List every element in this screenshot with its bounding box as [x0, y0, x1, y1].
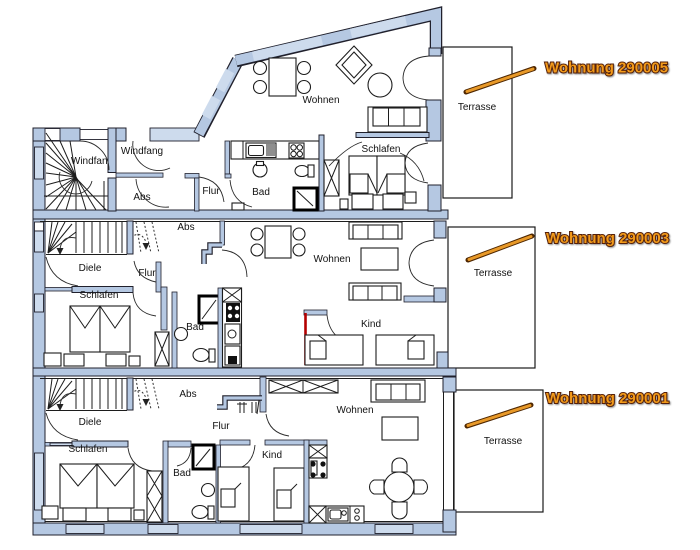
- svg-text:Schlafen: Schlafen: [362, 144, 401, 155]
- svg-text:Wohnung 290003: Wohnung 290003: [546, 230, 669, 247]
- svg-text:Diele: Diele: [79, 263, 102, 274]
- svg-text:Terrasse: Terrasse: [458, 102, 497, 113]
- svg-text:Wohnen: Wohnen: [313, 254, 350, 265]
- svg-text:Schlafen: Schlafen: [69, 444, 108, 455]
- svg-text:Wohnung 290001: Wohnung 290001: [546, 390, 669, 407]
- svg-text:Terrasse: Terrasse: [484, 436, 523, 447]
- svg-text:Abs: Abs: [179, 389, 196, 400]
- svg-text:Wohnung 290005: Wohnung 290005: [545, 60, 668, 77]
- svg-text:Diele: Diele: [79, 417, 102, 428]
- svg-text:Bad: Bad: [252, 187, 270, 198]
- svg-text:Flur: Flur: [138, 268, 156, 279]
- svg-text:Wohnen: Wohnen: [336, 405, 373, 416]
- svg-text:Windfang: Windfang: [121, 146, 163, 157]
- svg-text:Schlafen: Schlafen: [80, 290, 119, 301]
- svg-text:Kind: Kind: [262, 450, 282, 461]
- svg-text:Abs: Abs: [177, 222, 194, 233]
- svg-text:Flur: Flur: [212, 421, 230, 432]
- svg-text:Kind: Kind: [361, 319, 381, 330]
- svg-text:Terrasse: Terrasse: [474, 268, 513, 279]
- svg-text:Bad: Bad: [173, 468, 191, 479]
- svg-text:Wohnen: Wohnen: [302, 95, 339, 106]
- svg-text:Flur: Flur: [202, 186, 220, 197]
